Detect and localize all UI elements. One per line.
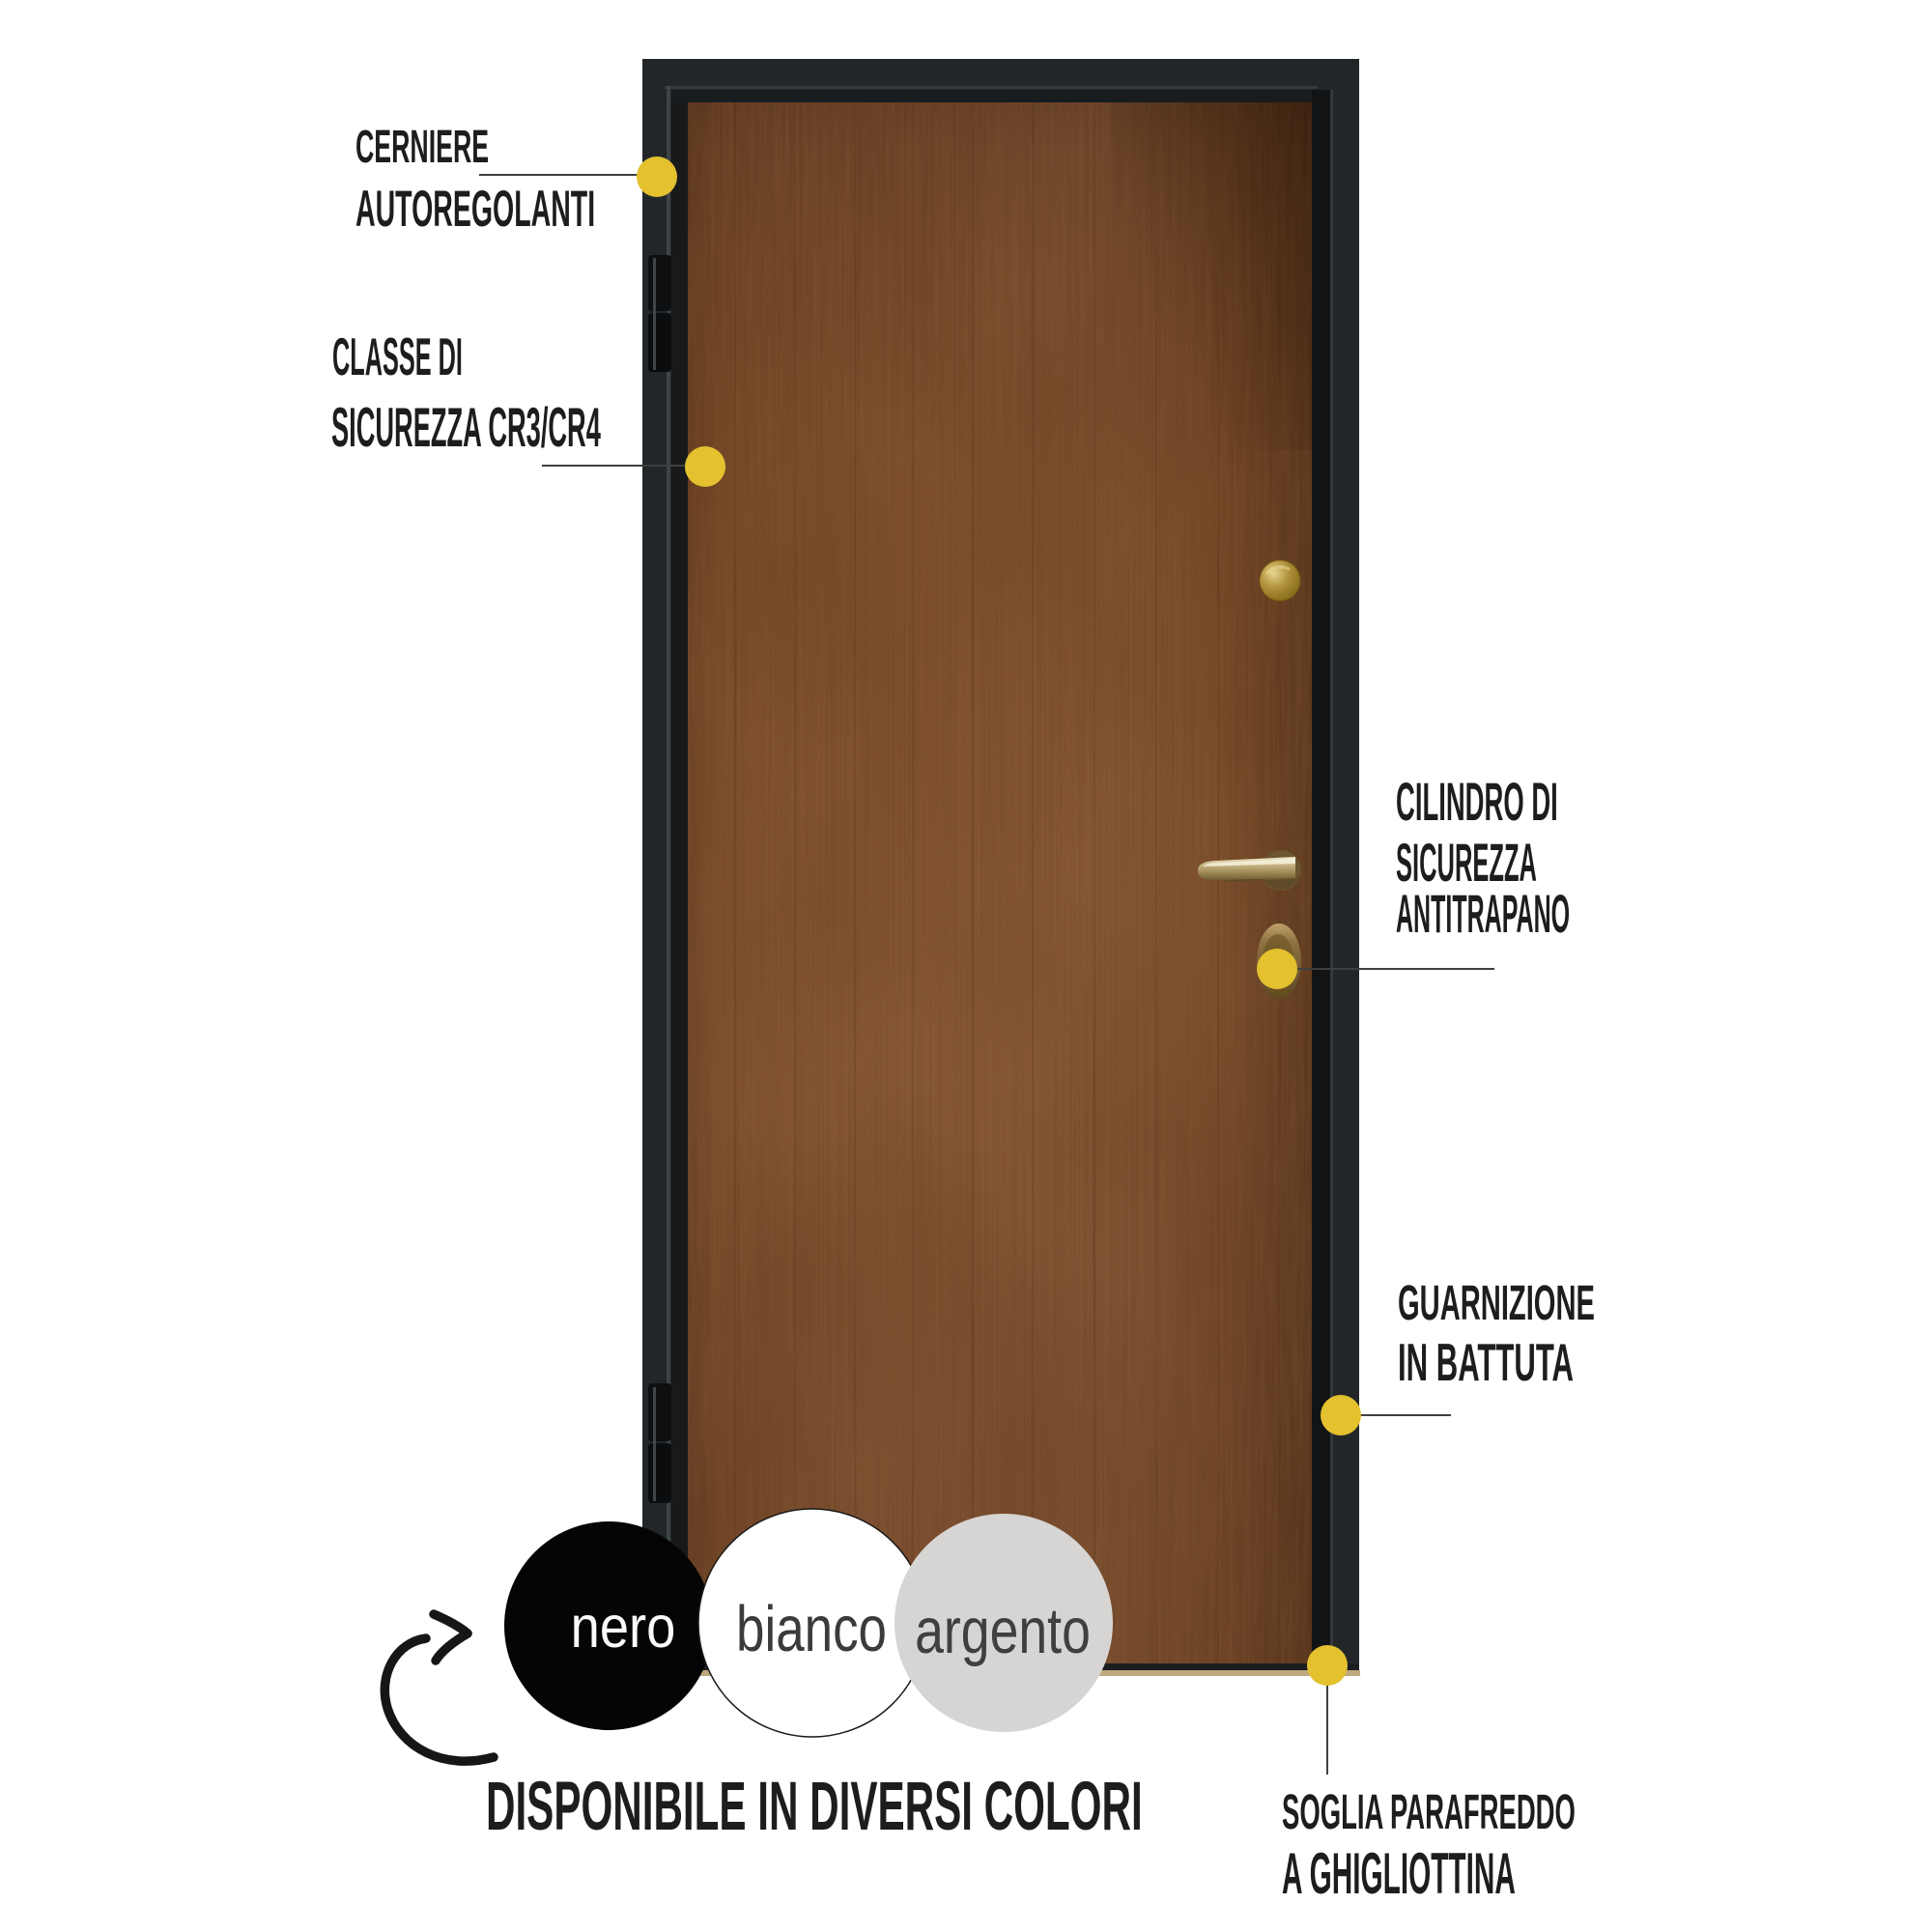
- svg-text:CILINDRO DI: CILINDRO DI: [1396, 773, 1558, 833]
- svg-text:DISPONIBILE IN DIVERSI COLORI: DISPONIBILE IN DIVERSI COLORI: [486, 1769, 1143, 1845]
- svg-text:ANTITRAPANO: ANTITRAPANO: [1396, 885, 1570, 945]
- svg-text:A GHIGLIOTTINA: A GHIGLIOTTINA: [1282, 1842, 1516, 1907]
- svg-text:IN BATTUTA: IN BATTUTA: [1398, 1334, 1574, 1392]
- svg-text:CLASSE DI: CLASSE DI: [332, 327, 463, 385]
- svg-text:argento: argento: [915, 1594, 1091, 1666]
- svg-text:bianco: bianco: [736, 1592, 887, 1664]
- svg-text:GUARNIZIONE: GUARNIZIONE: [1398, 1274, 1595, 1330]
- svg-text:SICUREZZA CR3/CR4: SICUREZZA CR3/CR4: [331, 398, 601, 459]
- svg-text:SOGLIA PARAFREDDO: SOGLIA PARAFREDDO: [1282, 1784, 1576, 1839]
- svg-text:nero: nero: [571, 1595, 676, 1661]
- svg-text:AUTOREGOLANTI: AUTOREGOLANTI: [355, 182, 595, 239]
- svg-text:CERNIERE: CERNIERE: [355, 121, 489, 174]
